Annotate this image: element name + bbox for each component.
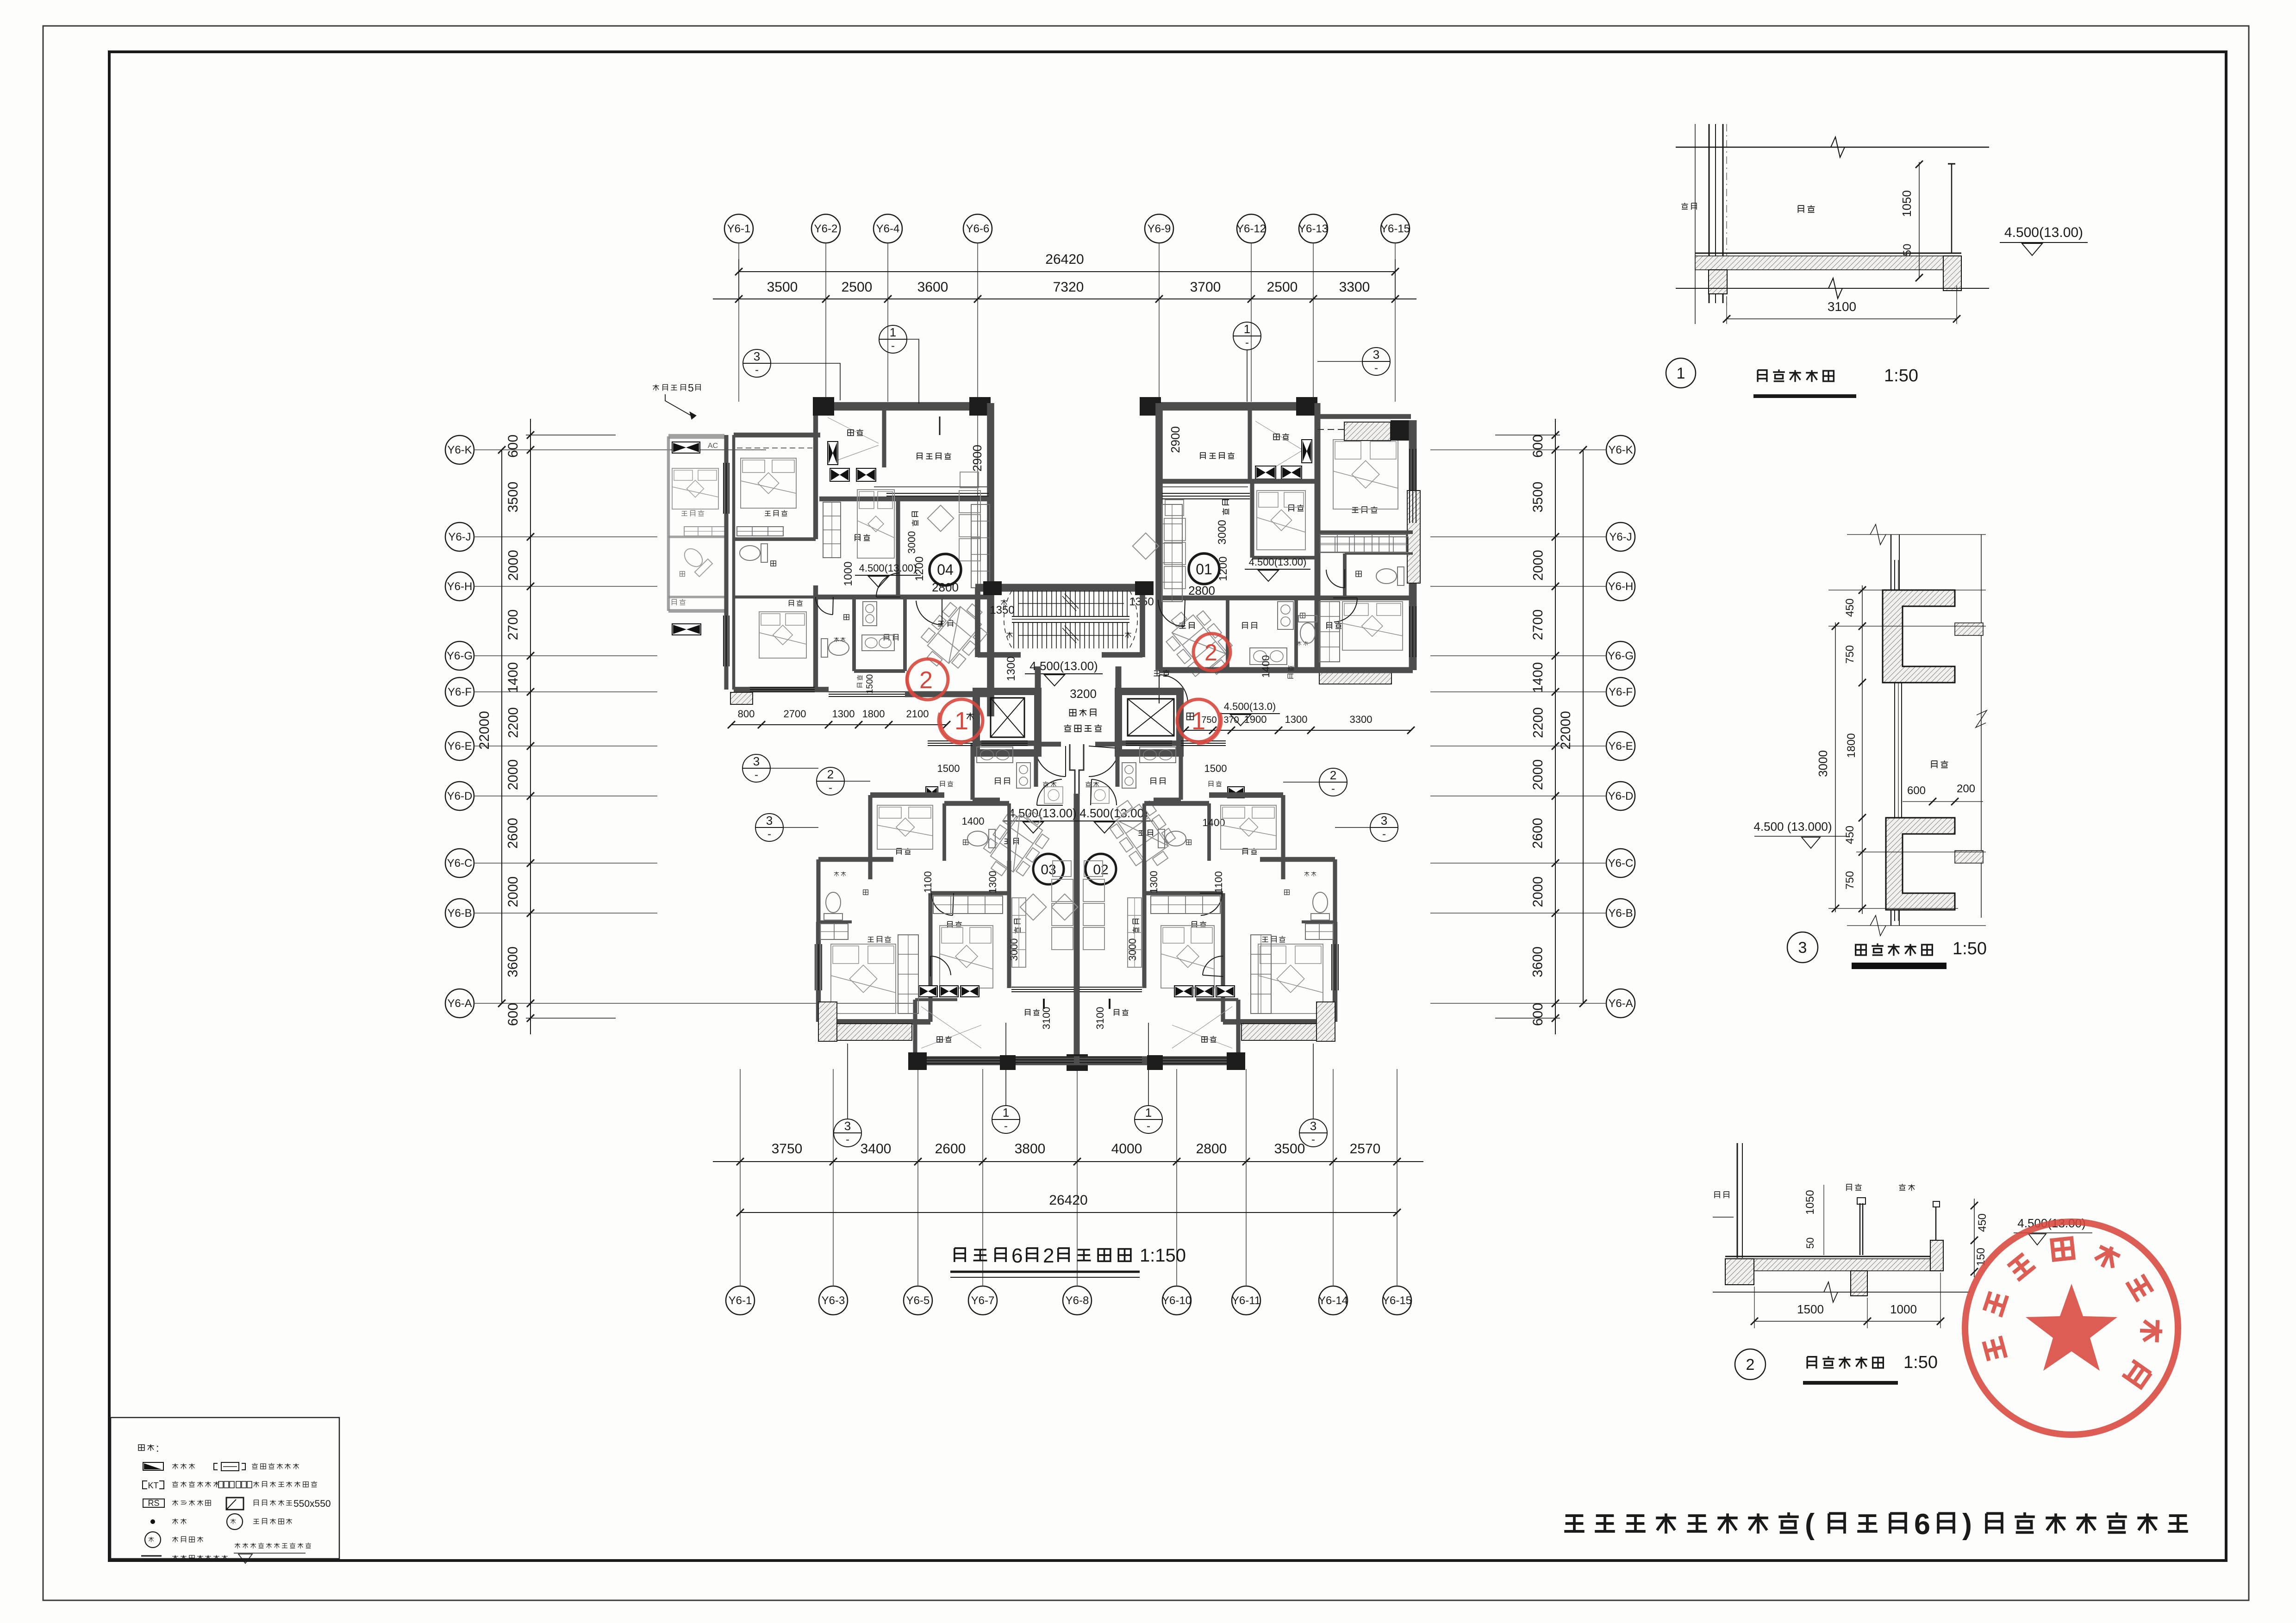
svg-text:4.500(13.00): 4.500(13.00) (2004, 225, 2083, 240)
svg-text:(: ( (1805, 1508, 1815, 1541)
svg-text:Y6-J: Y6-J (1609, 531, 1632, 543)
svg-text:3: 3 (1381, 814, 1387, 827)
svg-text:2700: 2700 (1530, 609, 1546, 640)
svg-text:1:50: 1:50 (1884, 366, 1918, 386)
svg-text:1500: 1500 (937, 763, 960, 774)
svg-text:1100: 1100 (1213, 871, 1224, 893)
svg-text:600: 600 (1530, 1003, 1546, 1026)
svg-text:-: - (767, 828, 771, 840)
svg-text:4.500(13.0): 4.500(13.0) (1224, 701, 1276, 712)
svg-text:3400: 3400 (861, 1141, 892, 1157)
svg-text:1300: 1300 (1005, 656, 1017, 681)
svg-text:1500: 1500 (1204, 763, 1227, 774)
svg-text:-: - (1147, 1120, 1150, 1132)
svg-text:3500: 3500 (505, 482, 521, 513)
svg-text:800: 800 (738, 708, 755, 720)
svg-text:1:50: 1:50 (1953, 939, 1987, 958)
svg-text:Y6-J: Y6-J (448, 531, 471, 543)
svg-text:Y6-5: Y6-5 (906, 1294, 930, 1307)
svg-text:Y6-10: Y6-10 (1162, 1294, 1192, 1307)
svg-text:1:150: 1:150 (1140, 1245, 1186, 1266)
svg-text:600: 600 (505, 435, 521, 458)
svg-text:Y6-1: Y6-1 (729, 1294, 752, 1307)
svg-text:3300: 3300 (1339, 280, 1370, 295)
svg-text:Y6-6: Y6-6 (966, 223, 990, 235)
svg-text:1: 1 (1145, 1106, 1152, 1119)
svg-text:Y6-1: Y6-1 (727, 223, 751, 235)
svg-text:3: 3 (753, 754, 760, 768)
svg-text:2900: 2900 (1168, 426, 1182, 453)
svg-text:3: 3 (754, 349, 760, 363)
svg-text:2700: 2700 (505, 609, 521, 640)
svg-text:-: - (829, 782, 832, 794)
svg-text:2500: 2500 (1267, 280, 1298, 295)
svg-text:1000: 1000 (842, 561, 855, 586)
svg-text:1300: 1300 (1285, 714, 1308, 725)
svg-text:1050: 1050 (1804, 1190, 1816, 1214)
svg-text:Y6-E: Y6-E (447, 740, 472, 752)
svg-text::: : (156, 1442, 159, 1455)
svg-text:3000: 3000 (1816, 750, 1830, 777)
svg-text:1: 1 (1003, 1106, 1009, 1119)
svg-text:3600: 3600 (505, 946, 521, 977)
svg-text:3000: 3000 (1216, 520, 1229, 544)
svg-text:3100: 3100 (1094, 1007, 1106, 1030)
svg-text:1000: 1000 (1890, 1302, 1917, 1316)
svg-text:-: - (1245, 336, 1249, 349)
svg-text:3800: 3800 (1015, 1141, 1046, 1157)
svg-text:6: 6 (1914, 1508, 1930, 1541)
svg-text:3300: 3300 (1350, 714, 1373, 725)
svg-text:2600: 2600 (505, 818, 521, 849)
svg-text:Y6-9: Y6-9 (1148, 223, 1171, 235)
svg-text:200: 200 (1957, 783, 1975, 795)
svg-text:03: 03 (1041, 862, 1056, 877)
svg-text:Y6-15: Y6-15 (1380, 223, 1410, 235)
svg-text:KT: KT (148, 1481, 158, 1490)
svg-text:1200: 1200 (913, 556, 926, 581)
svg-text:2000: 2000 (506, 550, 521, 581)
svg-text:3500: 3500 (767, 280, 798, 295)
svg-text:1800: 1800 (1845, 733, 1858, 758)
svg-text:2: 2 (1746, 1356, 1755, 1374)
svg-text:AC: AC (708, 442, 718, 450)
svg-text:1: 1 (890, 325, 896, 339)
svg-text:Y6-C: Y6-C (447, 857, 473, 870)
svg-text:3: 3 (1798, 939, 1807, 957)
svg-text:1400: 1400 (505, 662, 521, 693)
svg-text:-: - (846, 1133, 849, 1146)
svg-text:): ) (1962, 1508, 1972, 1541)
svg-text:3600: 3600 (1530, 946, 1546, 977)
svg-text:5: 5 (688, 382, 694, 394)
svg-text:Y6-K: Y6-K (1608, 444, 1633, 456)
svg-text:2: 2 (827, 767, 834, 781)
svg-text:2000: 2000 (505, 877, 521, 908)
svg-text:1350: 1350 (990, 604, 1014, 616)
svg-text:1: 1 (1192, 707, 1205, 735)
svg-text:3: 3 (844, 1119, 851, 1133)
svg-text:4.500(13.00): 4.500(13.00) (859, 562, 917, 574)
svg-text:2800: 2800 (1188, 584, 1215, 597)
svg-text:RS: RS (148, 1499, 159, 1508)
svg-text:2000: 2000 (1530, 877, 1546, 908)
svg-text:3: 3 (1373, 348, 1379, 361)
svg-text:2000: 2000 (1531, 550, 1546, 581)
svg-text:2800: 2800 (1196, 1141, 1227, 1157)
svg-text:3600: 3600 (917, 280, 948, 295)
svg-text:2600: 2600 (935, 1141, 966, 1157)
svg-text:600: 600 (1907, 784, 1926, 797)
svg-text:3100: 3100 (1041, 1007, 1052, 1030)
svg-text:1:50: 1:50 (1903, 1353, 1938, 1372)
svg-text:-: - (1374, 362, 1378, 374)
svg-text:750: 750 (1844, 645, 1856, 664)
svg-text:3100: 3100 (1828, 299, 1856, 314)
svg-text:1900: 1900 (1244, 714, 1267, 725)
svg-text:1200: 1200 (1217, 556, 1229, 581)
svg-text:2700: 2700 (784, 708, 806, 720)
svg-text:Y6-12: Y6-12 (1236, 223, 1266, 235)
svg-text:7320: 7320 (1053, 280, 1084, 295)
svg-text:3500: 3500 (1530, 482, 1546, 513)
svg-text:26420: 26420 (1045, 252, 1084, 267)
svg-text:450: 450 (1976, 1213, 1989, 1232)
svg-text:Y6-2: Y6-2 (814, 223, 838, 235)
svg-text:600: 600 (1530, 435, 1546, 458)
svg-text:1400: 1400 (1260, 655, 1272, 678)
svg-text:Y6-A: Y6-A (447, 997, 472, 1010)
svg-text:Y6-D: Y6-D (1608, 790, 1634, 802)
svg-text:1400: 1400 (1203, 817, 1225, 828)
svg-text:4.500(13.00): 4.500(13.00) (1079, 806, 1148, 820)
svg-text:4.500 (13.000): 4.500 (13.000) (1753, 820, 1832, 833)
svg-text:1300: 1300 (832, 708, 855, 720)
svg-text:600: 600 (505, 1003, 521, 1026)
svg-text:Y6-G: Y6-G (1608, 650, 1634, 662)
svg-text:1400: 1400 (962, 815, 985, 827)
svg-text:-: - (1004, 1120, 1008, 1132)
svg-text:3500: 3500 (1274, 1141, 1305, 1157)
svg-text:Y6-H: Y6-H (1608, 580, 1634, 593)
svg-text:Y6-G: Y6-G (447, 650, 473, 662)
svg-text:2200: 2200 (1531, 707, 1546, 738)
svg-text:-: - (1382, 828, 1386, 840)
svg-text:Y6-3: Y6-3 (822, 1294, 845, 1307)
svg-text:370: 370 (1223, 715, 1239, 725)
svg-text:26420: 26420 (1049, 1193, 1087, 1208)
svg-text:2100: 2100 (906, 708, 929, 720)
svg-text:2: 2 (1330, 768, 1336, 782)
svg-text:2: 2 (1043, 1244, 1054, 1267)
svg-text:3750: 3750 (772, 1141, 803, 1157)
svg-text:3700: 3700 (1190, 280, 1221, 295)
svg-text:1400: 1400 (1530, 662, 1546, 693)
svg-text:-: - (755, 364, 759, 376)
svg-text:22000: 22000 (477, 711, 492, 749)
svg-text:450: 450 (1844, 826, 1856, 844)
svg-text:1: 1 (1244, 322, 1250, 336)
svg-text:Y6-F: Y6-F (448, 686, 472, 698)
svg-text:2: 2 (1204, 640, 1217, 665)
svg-text:Y6-K: Y6-K (447, 444, 472, 456)
svg-text:3: 3 (766, 814, 773, 827)
svg-text:Y6-15: Y6-15 (1382, 1294, 1412, 1307)
svg-text:-: - (1331, 783, 1335, 795)
svg-text:Y6-H: Y6-H (447, 580, 473, 593)
svg-text:1: 1 (955, 707, 968, 735)
svg-text:Y6-7: Y6-7 (971, 1294, 995, 1307)
svg-text:Y6-8: Y6-8 (1066, 1294, 1089, 1307)
svg-text:4000: 4000 (1111, 1141, 1142, 1157)
svg-text:1300: 1300 (987, 871, 998, 894)
svg-text:-: - (755, 769, 758, 781)
svg-text:1500: 1500 (865, 674, 875, 694)
svg-text:50: 50 (1901, 244, 1914, 256)
svg-text:2800: 2800 (932, 580, 959, 594)
svg-text:2900: 2900 (970, 445, 984, 472)
svg-text:750: 750 (1844, 871, 1856, 889)
svg-text:2: 2 (919, 667, 933, 694)
svg-text:2000: 2000 (1530, 759, 1546, 790)
svg-text:Y6-14: Y6-14 (1318, 1294, 1348, 1307)
svg-text:Y6-B: Y6-B (1608, 907, 1633, 920)
svg-text:Y6-A: Y6-A (1608, 997, 1633, 1010)
svg-text:22000: 22000 (1558, 711, 1573, 749)
svg-text:Y6-D: Y6-D (447, 790, 473, 802)
svg-text:2500: 2500 (842, 280, 873, 295)
svg-text:1: 1 (1677, 365, 1685, 382)
svg-text:Y6-B: Y6-B (447, 907, 472, 920)
svg-text:3200: 3200 (1070, 687, 1097, 701)
svg-text:1800: 1800 (862, 708, 885, 720)
svg-text:50: 50 (1804, 1237, 1816, 1249)
svg-text:Y6-4: Y6-4 (876, 223, 900, 235)
svg-text:2200: 2200 (506, 707, 521, 738)
svg-text:4.500(13.00): 4.500(13.00) (1249, 556, 1307, 568)
svg-text:Y6-C: Y6-C (1608, 857, 1634, 870)
svg-text:450: 450 (1844, 598, 1856, 617)
svg-text:2570: 2570 (1350, 1141, 1381, 1157)
svg-text:Y6-11: Y6-11 (1232, 1294, 1260, 1307)
svg-text:04: 04 (937, 561, 954, 578)
svg-text:-: - (1311, 1133, 1315, 1146)
svg-text:6: 6 (1011, 1244, 1023, 1267)
svg-text:1300: 1300 (1148, 871, 1160, 894)
svg-text:1100: 1100 (922, 871, 934, 893)
svg-text:3000: 3000 (906, 531, 917, 554)
svg-text:2600: 2600 (1530, 818, 1546, 849)
svg-text:-: - (891, 340, 895, 352)
svg-text:Y6-F: Y6-F (1609, 686, 1633, 698)
svg-text:Y6-E: Y6-E (1608, 740, 1633, 752)
svg-text:1050: 1050 (1900, 190, 1914, 217)
svg-text:1500: 1500 (1797, 1302, 1824, 1316)
svg-text:550x550: 550x550 (293, 1499, 331, 1509)
svg-text:01: 01 (1196, 561, 1212, 578)
svg-text:2000: 2000 (505, 759, 521, 790)
svg-text:02: 02 (1093, 862, 1108, 877)
svg-text:3: 3 (1310, 1119, 1316, 1133)
svg-text:Y6-13: Y6-13 (1298, 223, 1328, 235)
